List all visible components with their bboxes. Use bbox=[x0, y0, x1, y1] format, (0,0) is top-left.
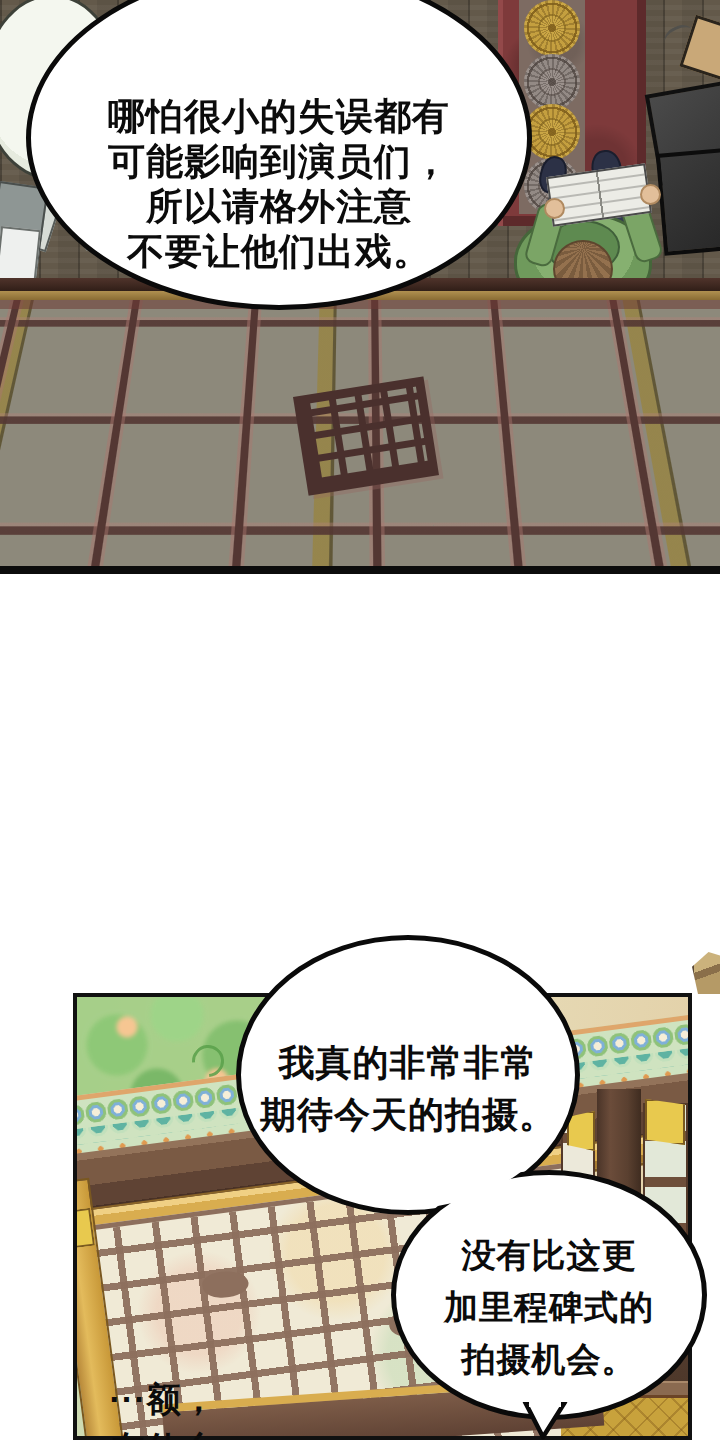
speech-bubble-3-fill bbox=[398, 1177, 700, 1413]
margin-ornament bbox=[692, 952, 720, 994]
webtoon-page: 哪怕很小的失误都有 可能影响到演员们， 所以请格外注意 不要让他们出戏。 bbox=[0, 0, 720, 1440]
speech-bubble-tail bbox=[521, 1402, 569, 1440]
carpet-medallion-gray bbox=[524, 54, 580, 110]
lattice-top-strip bbox=[0, 300, 720, 309]
gold-bracket bbox=[645, 1099, 685, 1145]
gold-bracket bbox=[73, 1208, 95, 1250]
ornate-lattice-square bbox=[293, 376, 439, 495]
person-hand bbox=[544, 198, 565, 219]
cloud-motif bbox=[201, 1269, 250, 1301]
carpet-medallion-gold bbox=[524, 104, 580, 160]
speech-bubble-2-fill bbox=[243, 942, 573, 1208]
panel-bottom-edge bbox=[0, 566, 720, 574]
monitor-box bbox=[656, 146, 720, 255]
lattice-screen-floor bbox=[0, 300, 720, 566]
carpet-medallion-gold bbox=[524, 0, 580, 56]
person-hand bbox=[640, 184, 661, 205]
